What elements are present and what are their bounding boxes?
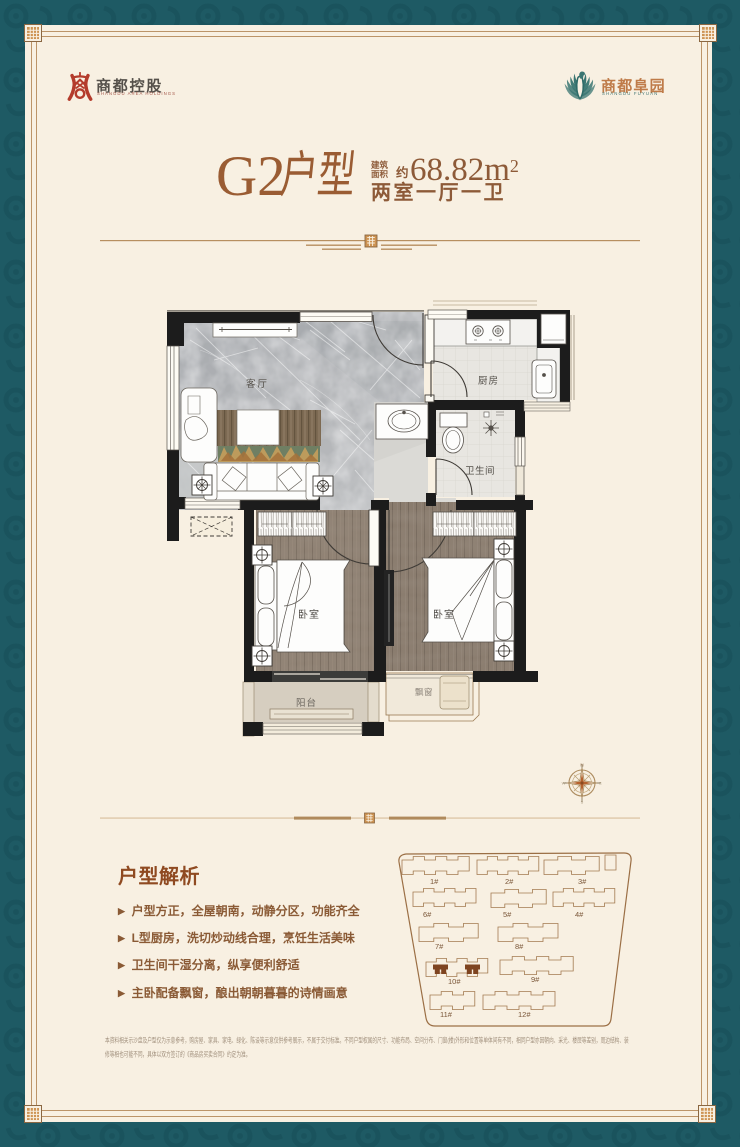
svg-text:5#: 5#	[503, 910, 512, 919]
svg-text:4#: 4#	[575, 910, 584, 919]
svg-text:卫生间: 卫生间	[465, 465, 495, 477]
svg-text:3#: 3#	[578, 877, 587, 886]
svg-text:6#: 6#	[423, 910, 432, 919]
svg-text:2#: 2#	[505, 877, 514, 886]
svg-text:11#: 11#	[440, 1010, 453, 1019]
svg-text:飘窗: 飘窗	[415, 687, 433, 697]
svg-text:阳台: 阳台	[296, 697, 317, 709]
svg-text:10#: 10#	[448, 977, 461, 986]
svg-text:S: S	[581, 800, 584, 805]
svg-text:7#: 7#	[435, 942, 444, 951]
svg-text:厨房: 厨房	[478, 375, 499, 387]
svg-text:客厅: 客厅	[246, 378, 269, 390]
svg-text:卧室: 卧室	[433, 608, 455, 621]
svg-text:W: W	[562, 781, 566, 786]
svg-text:E: E	[599, 781, 602, 786]
svg-text:12#: 12#	[518, 1010, 531, 1019]
svg-text:9#: 9#	[531, 975, 540, 984]
svg-text:N: N	[580, 763, 583, 768]
svg-text:卧室: 卧室	[298, 608, 320, 621]
svg-text:1#: 1#	[430, 877, 439, 886]
svg-text:8#: 8#	[515, 942, 524, 951]
